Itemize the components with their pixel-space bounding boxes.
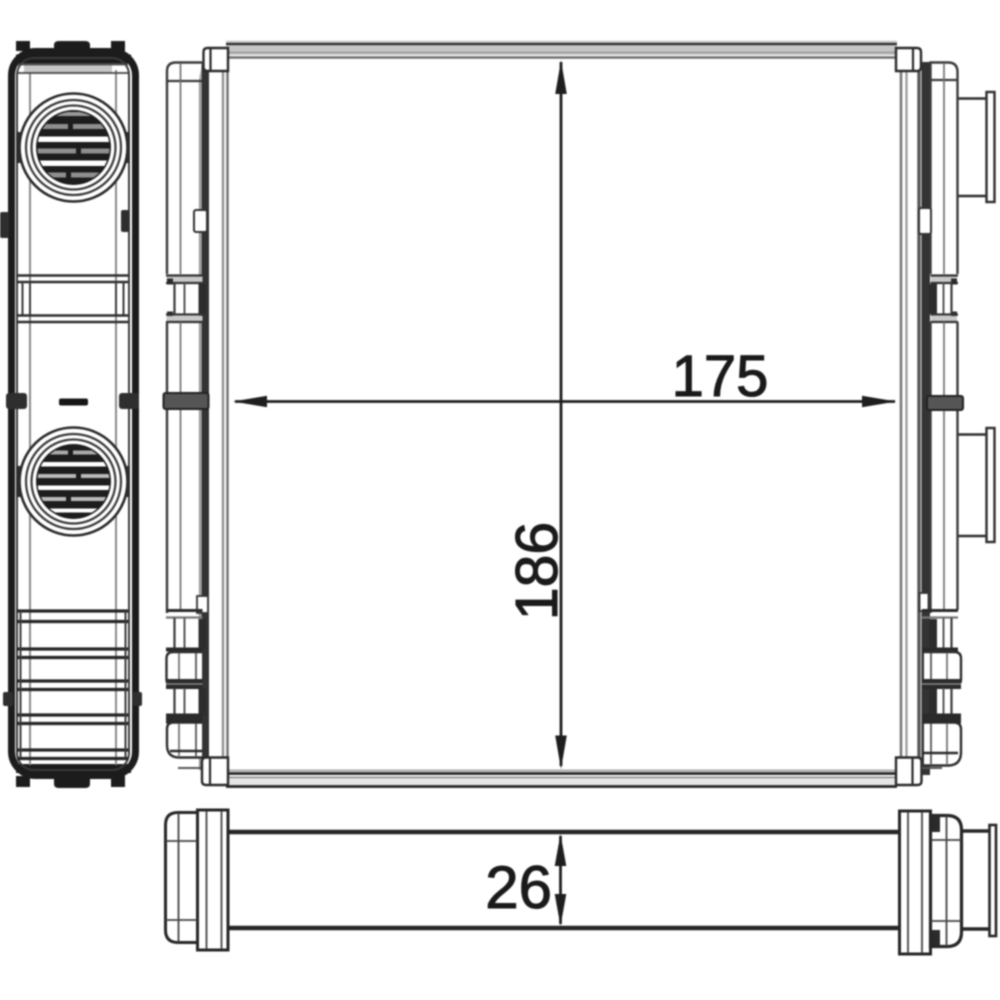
svg-text:186: 186 [504, 522, 570, 620]
svg-text:26: 26 [485, 854, 552, 921]
svg-text:175: 175 [672, 344, 769, 409]
